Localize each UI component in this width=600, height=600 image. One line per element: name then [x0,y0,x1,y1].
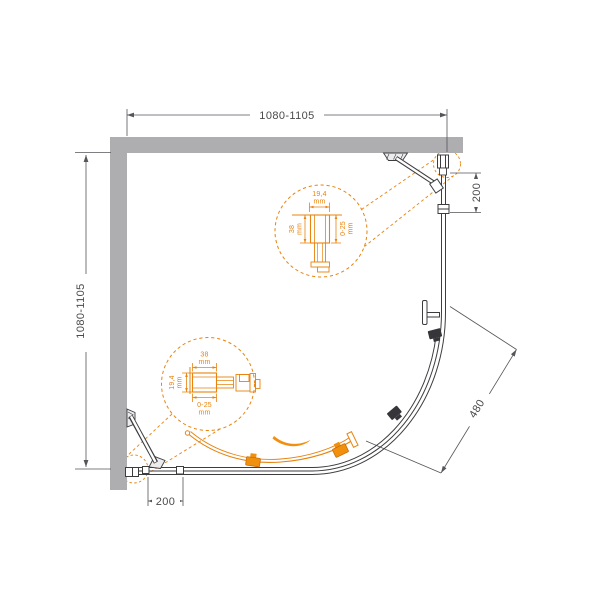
dimension-left-label: 1080-1105 [75,283,87,338]
door-roller-orange-right [330,440,348,458]
wall-profile-bottom-left [126,468,139,477]
dimension-right-label: 200 [471,183,483,203]
detail-bottom-adjust-value: 0-25 [197,402,212,409]
detail-bottom-depth-value: 19,4 [169,375,176,389]
callout-cone-bottom [120,338,255,484]
shower-enclosure-plan-drawing: 1080-1105 1080-1105 200 200 [0,0,600,600]
door-end-cap [185,431,189,435]
rail-clamp-2 [177,467,184,475]
detail-top-depth-value: 38 [289,225,296,233]
detail-bottom-adjust-unit: mm [198,410,210,417]
support-bar-top-right [384,153,444,193]
wall-top [110,137,463,153]
detail-bottom-depth-unit: mm [177,376,184,388]
wall-profile-top-right [438,155,449,175]
door-roller-orange-left [246,453,262,467]
detail-top-adjust-value: 0-25 [340,221,347,236]
detail-bottom-width-unit: mm [198,359,210,366]
dimension-left-depth: 1080-1105 [73,153,111,470]
detail-top-adjust-unit: mm [348,222,355,234]
dimension-radius-480: 480 [366,307,517,474]
dimension-bottom-200: 200 [148,477,183,508]
detail-bottom-width-value: 38 [200,352,208,359]
sliding-door-open [185,431,358,467]
detail-top-width-value: 19,4 [312,191,326,198]
dimension-right-200: 200 [450,173,483,213]
door-arc-inner [191,432,353,460]
detail-top-depth-unit: mm [297,223,304,235]
door-handle [423,301,440,325]
door-stop-bracket [347,432,358,448]
dimension-bottom-label: 200 [156,496,176,508]
wall-left [110,137,127,490]
dimension-top-label: 1080-1105 [259,110,314,122]
plan-svg: 1080-1105 1080-1105 200 200 [0,0,600,600]
detail-top-width-unit: mm [313,199,325,206]
rail-clamp-1 [143,467,150,474]
door-arc-outer [189,435,355,463]
slide-direction-arrow [273,436,311,446]
callout-cone-top [275,151,461,278]
